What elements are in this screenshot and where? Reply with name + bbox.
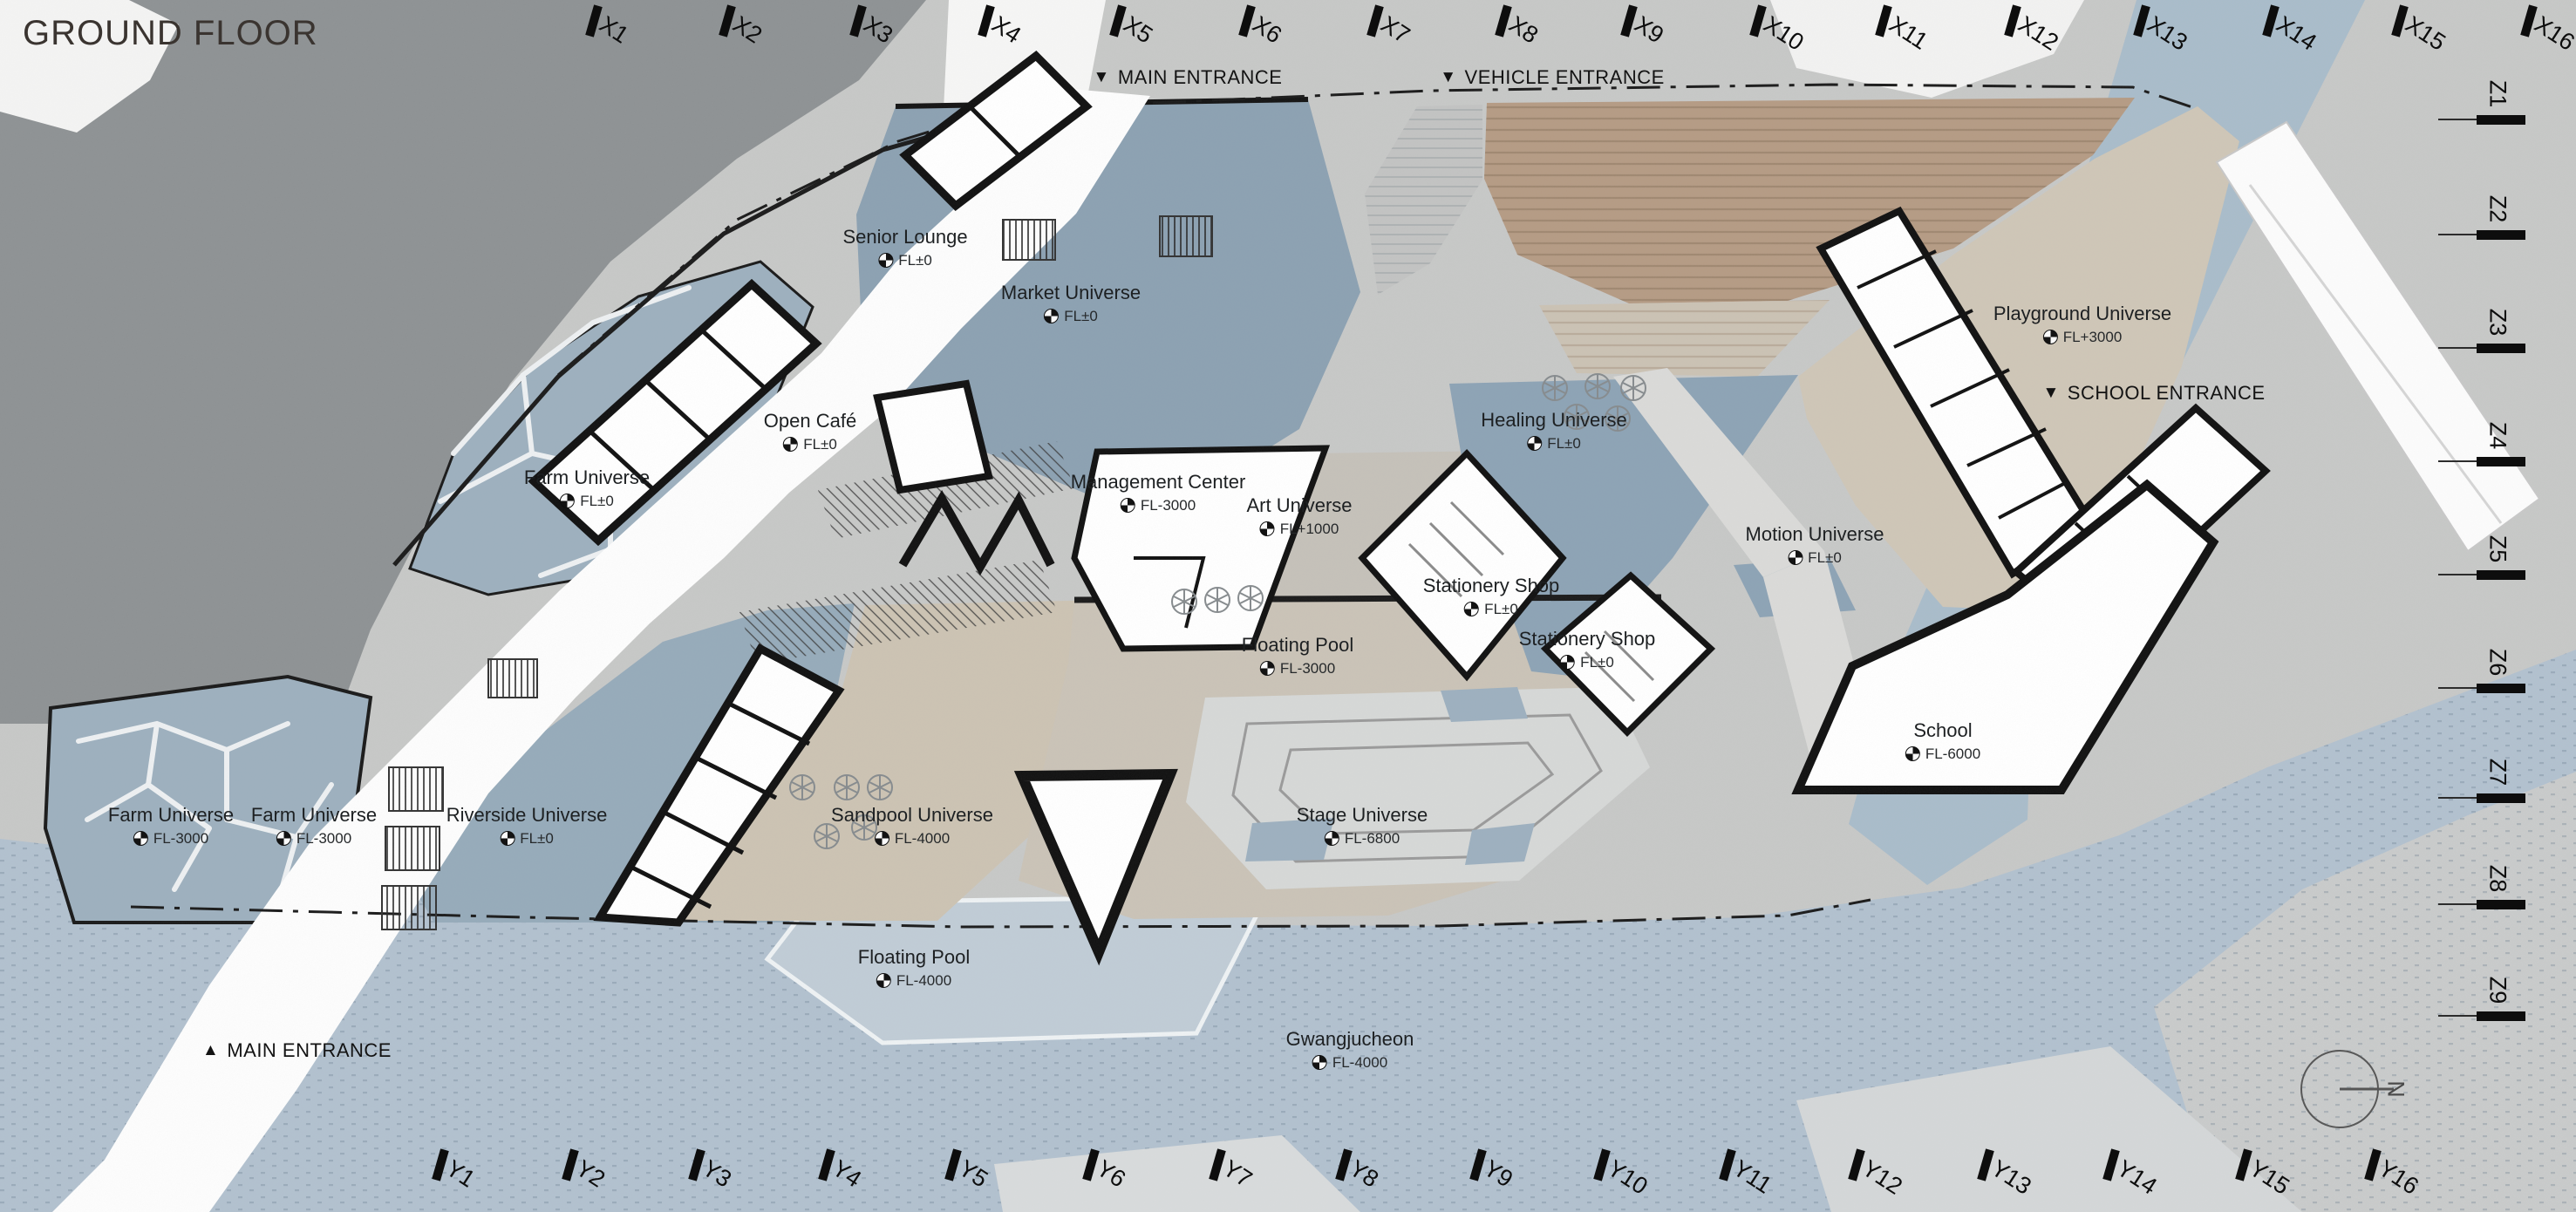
- grid-marker-y9: Y9: [1474, 1149, 1482, 1181]
- grid-marker-x1: X1: [589, 5, 598, 37]
- zone-label-farm-universe-upper: Farm Universe FL±0: [524, 466, 650, 510]
- grid-marker-y16: Y16: [2368, 1149, 2377, 1181]
- level-benchmark-icon: [1464, 602, 1479, 616]
- grid-marker-y6: Y6: [1087, 1149, 1095, 1181]
- grid-marker-x9: X9: [1625, 5, 1633, 37]
- zone-label-school: School FL-6000: [1905, 718, 1980, 763]
- grid-marker-y12: Y12: [1852, 1149, 1861, 1181]
- grid-marker-x8: X8: [1499, 5, 1508, 37]
- arrow-up-icon: ▲: [202, 1041, 219, 1060]
- level-benchmark-icon: [1121, 498, 1135, 513]
- level-benchmark-icon: [1905, 746, 1920, 761]
- level-benchmark-icon: [1325, 831, 1339, 846]
- grid-marker-x4: X4: [982, 5, 991, 37]
- grid-marker-x13: X13: [2137, 5, 2146, 37]
- level-benchmark-icon: [276, 831, 291, 846]
- grid-marker-y8: Y8: [1339, 1149, 1348, 1181]
- main-entrance-top-label: ▼ MAIN ENTRANCE: [1094, 66, 1283, 89]
- zone-label-floating-pool-center: Floating Pool FL-3000: [1242, 633, 1353, 677]
- compass-north-label: N: [2382, 1080, 2409, 1098]
- grid-tick-icon: [2477, 457, 2525, 466]
- grid-marker-y10: Y10: [1598, 1149, 1606, 1181]
- grid-marker-x16: X16: [2525, 5, 2533, 37]
- grid-tick-icon: [2477, 793, 2525, 803]
- zone-label-farm-universe-walkway: Farm Universe FL-3000: [251, 803, 377, 848]
- arrow-down-icon: ▼: [2042, 384, 2059, 403]
- grid-marker-x3: X3: [854, 5, 862, 37]
- grid-marker-x6: X6: [1243, 5, 1251, 37]
- level-benchmark-icon: [1560, 655, 1575, 670]
- zone-label-stage-universe: Stage Universe FL-6800: [1297, 803, 1428, 848]
- zone-label-gwangjucheon: Gwangjucheon FL-4000: [1286, 1027, 1414, 1072]
- grid-marker-y11: Y11: [1723, 1149, 1732, 1181]
- level-benchmark-icon: [878, 253, 893, 268]
- zone-label-floating-pool-south: Floating Pool FL-4000: [858, 945, 970, 990]
- level-benchmark-icon: [1788, 550, 1803, 565]
- level-benchmark-icon: [560, 494, 575, 508]
- zone-label-motion-universe: Motion Universe FL±0: [1746, 522, 1884, 567]
- zone-label-management-center: Management Center FL-3000: [1071, 470, 1246, 514]
- main-entrance-bottom-label: ▲ MAIN ENTRANCE: [202, 1039, 392, 1062]
- grid-marker-y13: Y13: [1981, 1149, 1990, 1181]
- level-benchmark-icon: [783, 437, 798, 452]
- grid-marker-x14: X14: [2266, 5, 2275, 37]
- zone-label-farm-universe-left: Farm Universe FL-3000: [108, 803, 234, 848]
- grid-tick-icon: [2477, 684, 2525, 693]
- school-entrance-label: ▼ SCHOOL ENTRANCE: [2042, 382, 2265, 405]
- grid-tick-icon: [2477, 900, 2525, 909]
- grid-marker-y15: Y15: [2239, 1149, 2248, 1181]
- page-title: GROUND FLOOR: [23, 14, 318, 53]
- zone-label-senior-lounge: Senior Lounge FL±0: [842, 225, 967, 269]
- level-benchmark-icon: [500, 831, 515, 846]
- grid-tick-icon: [2477, 1011, 2525, 1021]
- zone-label-stationery-shop-2: Stationery Shop FL±0: [1519, 627, 1656, 671]
- grid-marker-y5: Y5: [949, 1149, 957, 1181]
- grid-marker-y14: Y14: [2107, 1149, 2116, 1181]
- level-benchmark-icon: [875, 831, 889, 846]
- north-compass-icon: N: [2300, 1050, 2379, 1128]
- grid-marker-x2: X2: [723, 5, 732, 37]
- arrow-down-icon: ▼: [1094, 68, 1110, 87]
- arrow-down-icon: ▼: [1440, 68, 1456, 87]
- grid-tick-icon: [2477, 115, 2525, 125]
- level-benchmark-icon: [1312, 1055, 1327, 1070]
- grid-marker-y4: Y4: [822, 1149, 831, 1181]
- grid-marker-y1: Y1: [436, 1149, 445, 1181]
- level-benchmark-icon: [876, 973, 891, 988]
- zone-label-sandpool-universe: Sandpool Universe FL-4000: [831, 803, 993, 848]
- level-benchmark-icon: [2043, 330, 2058, 344]
- grid-marker-x15: X15: [2395, 5, 2404, 37]
- level-benchmark-icon: [1260, 661, 1275, 676]
- zone-label-art-universe: Art Universe FL+1000: [1246, 494, 1352, 538]
- grid-marker-x10: X10: [1754, 5, 1762, 37]
- grid-marker-x7: X7: [1371, 5, 1380, 37]
- level-benchmark-icon: [1527, 436, 1542, 451]
- zone-label-stationery-shop-1: Stationery Shop FL±0: [1423, 574, 1560, 618]
- grid-tick-icon: [2477, 344, 2525, 353]
- grid-tick-icon: [2477, 570, 2525, 580]
- grid-marker-y7: Y7: [1213, 1149, 1222, 1181]
- grid-marker-x12: X12: [2008, 5, 2017, 37]
- level-benchmark-icon: [1260, 521, 1275, 536]
- level-benchmark-icon: [133, 831, 148, 846]
- zone-label-playground-universe: Playground Universe FL+3000: [1993, 302, 2171, 346]
- grid-marker-y3: Y3: [692, 1149, 701, 1181]
- grid-tick-icon: [2477, 230, 2525, 240]
- level-benchmark-icon: [1044, 309, 1059, 323]
- zone-label-market-universe: Market Universe FL±0: [1001, 281, 1141, 325]
- zone-label-healing-universe: Healing Universe FL±0: [1481, 408, 1627, 453]
- zone-label-open-cafe: Open Café FL±0: [764, 409, 856, 453]
- zone-label-riverside-universe: Riverside Universe FL±0: [446, 803, 608, 848]
- grid-marker-x11: X11: [1879, 5, 1888, 37]
- grid-marker-y2: Y2: [566, 1149, 575, 1181]
- grid-marker-x5: X5: [1114, 5, 1122, 37]
- vehicle-entrance-label: ▼ VEHICLE ENTRANCE: [1440, 66, 1665, 89]
